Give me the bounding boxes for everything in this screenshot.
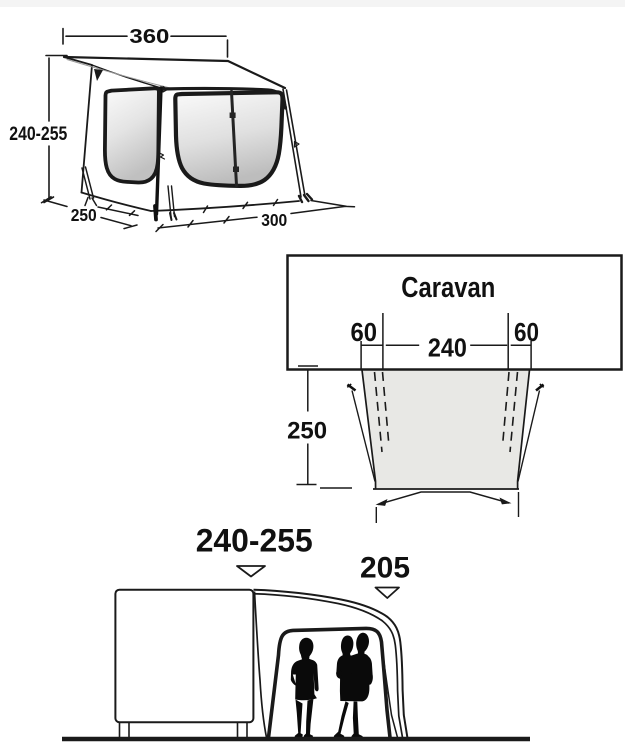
svg-text:250: 250	[287, 418, 327, 445]
svg-text:240-255: 240-255	[9, 124, 67, 145]
svg-text:240-255: 240-255	[196, 523, 313, 559]
svg-text:60: 60	[514, 317, 539, 347]
svg-text:250: 250	[71, 205, 97, 225]
svg-text:240: 240	[428, 333, 467, 363]
svg-text:300: 300	[261, 210, 287, 230]
svg-text:205: 205	[360, 552, 410, 585]
svg-text:Caravan: Caravan	[401, 272, 495, 304]
svg-text:60: 60	[351, 317, 378, 347]
svg-text:360: 360	[129, 26, 169, 48]
